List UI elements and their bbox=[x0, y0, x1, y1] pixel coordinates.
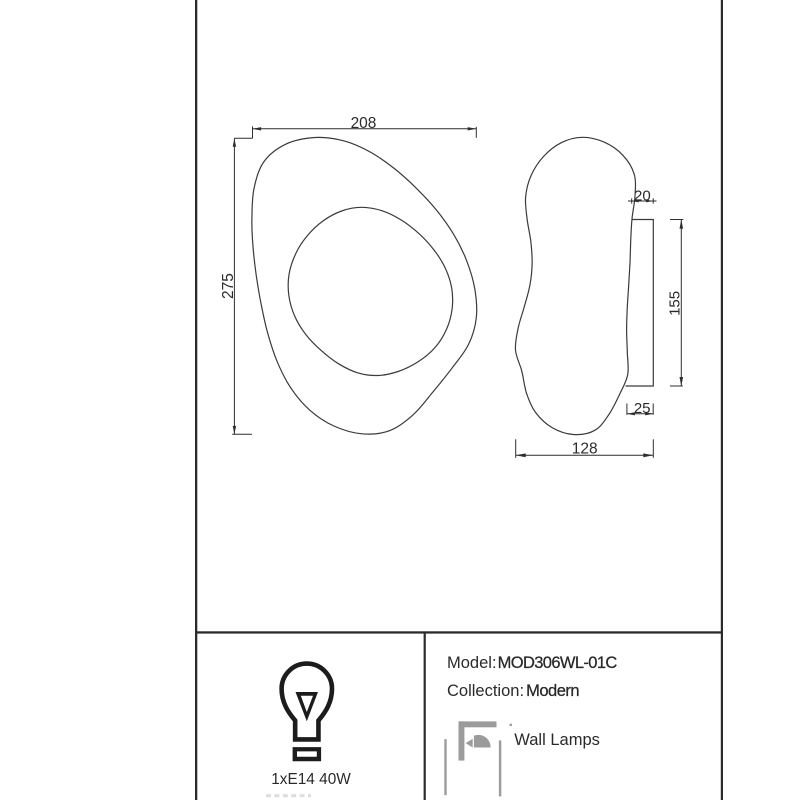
svg-text:1xE14 40W: 1xE14 40W bbox=[271, 771, 351, 788]
svg-text:275: 275 bbox=[220, 273, 237, 299]
svg-text:208: 208 bbox=[351, 115, 377, 132]
svg-text:20: 20 bbox=[634, 187, 651, 204]
svg-text:Collection: Modern: Collection: Modern bbox=[447, 682, 579, 700]
svg-text:128: 128 bbox=[572, 440, 598, 457]
svg-text:25: 25 bbox=[634, 400, 651, 417]
svg-text:155: 155 bbox=[667, 291, 684, 316]
svg-text:Wall Lamps: Wall Lamps bbox=[514, 731, 600, 749]
svg-text:Model: MOD306WL-01C: Model: MOD306WL-01C bbox=[447, 654, 617, 672]
